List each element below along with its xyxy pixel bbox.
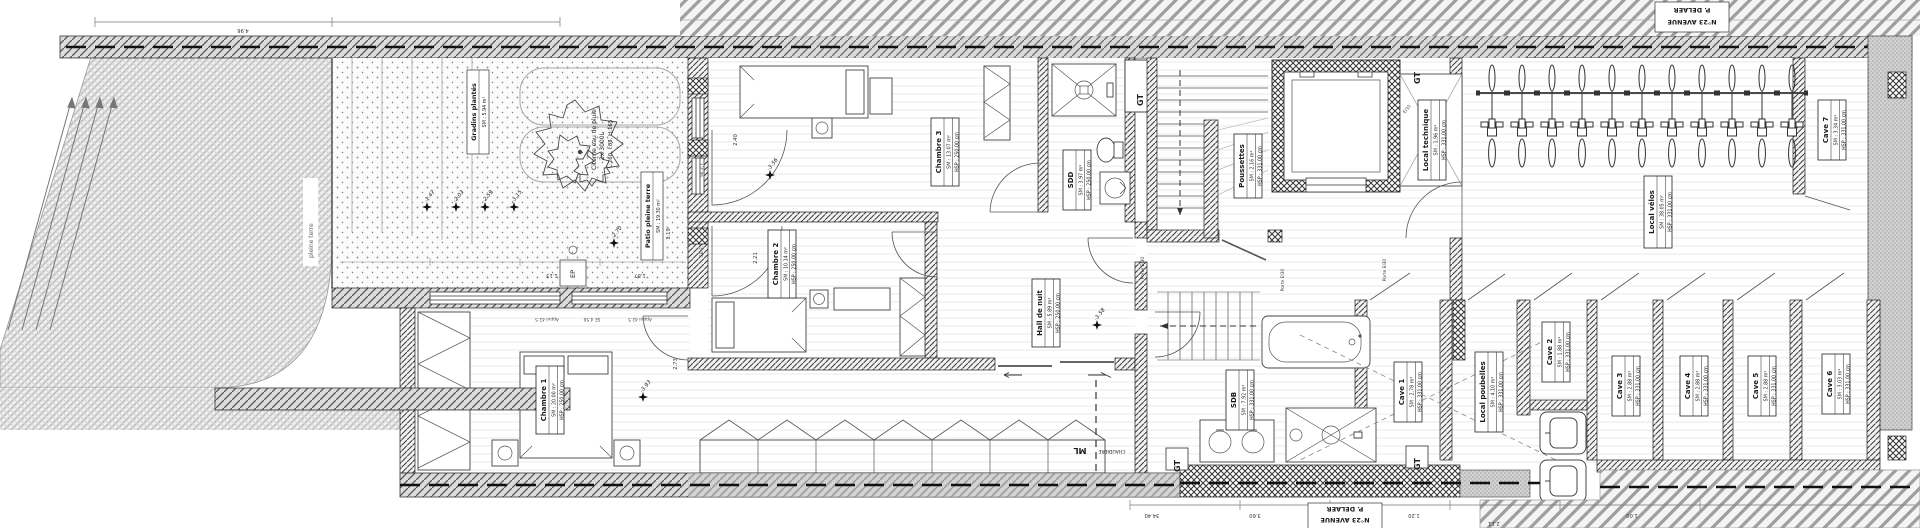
room-label-local-poubelles: Local poubelles SM : 4.10 m² HSP : 331.0… [1475, 352, 1505, 432]
svg-text:Cave 4: Cave 4 [1684, 373, 1692, 400]
svg-text:Citerne eau de pluie: Citerne eau de pluie [591, 109, 598, 170]
svg-text:1.19: 1.19 [666, 228, 672, 240]
svg-text:Chambre 2: Chambre 2 [772, 243, 780, 286]
svg-text:Porte EI30: Porte EI30 [1382, 259, 1388, 282]
room-label-sdb: SDB SM : 7.92 m² HSP : 331.00 cm [1226, 370, 1256, 430]
svg-text:Patio pleine terre: Patio pleine terre [644, 183, 652, 248]
floor-plan-canvas: pleine terre N°23 AVENUE P. DELAER 4.96 [0, 0, 1920, 528]
room-label-sdd: SDD SM : 3.97 m² HSP : 250.00 cm [1063, 150, 1093, 210]
svg-text:SM : 10.14 m²: SM : 10.14 m² [784, 247, 790, 281]
elevator-shaft [1272, 60, 1400, 192]
svg-text:Cave 5: Cave 5 [1752, 373, 1760, 400]
svg-text:SDB: SDB [1230, 392, 1238, 408]
svg-text:SM : 5.89 m²: SM : 5.89 m² [1048, 298, 1054, 329]
svg-text:HSP : 331.00 cm: HSP : 331.00 cm [1258, 146, 1264, 186]
svg-text:SM : 5.94 m²: SM : 5.94 m² [482, 97, 488, 128]
svg-text:GT: GT [1136, 94, 1145, 106]
parcel-pleine-terre-label: pleine terre [303, 178, 318, 266]
toilet-icon [1097, 138, 1123, 162]
svg-text:P. DELAER: P. DELAER [1327, 505, 1364, 513]
bathtub-icon [1262, 316, 1370, 368]
svg-text:SM : 2.16 m²: SM : 2.16 m² [1250, 151, 1256, 182]
avenue-label-bottom: N°23 AVENUE P. DELAER [1308, 503, 1382, 528]
patio-label: Patio pleine terre SM : 19.30 m² [641, 172, 663, 260]
svg-text:Appui 42.5: Appui 42.5 [535, 316, 559, 322]
svg-text:Chambre 3: Chambre 3 [935, 131, 943, 174]
svg-text:SM : 2.78 m²: SM : 2.78 m² [1410, 377, 1416, 408]
svg-text:Gradins plantés: Gradins plantés [470, 83, 478, 141]
floor-plan-page: pleine terre N°23 AVENUE P. DELAER 4.96 [0, 0, 1920, 528]
room-label-chambre2: Chambre 2 SM : 10.14 m² HSP : 250.00 cm [768, 230, 798, 298]
svg-text:HSP : 331.00 cm: HSP : 331.00 cm [1442, 120, 1448, 160]
svg-text:1.20: 1.20 [1408, 512, 1420, 518]
svg-text:HSP : 250.00 cm: HSP : 250.00 cm [792, 244, 798, 284]
svg-text:HSP : 331.00 cm: HSP : 331.00 cm [1636, 366, 1642, 406]
svg-text:HSP : 331.00 cm: HSP : 331.00 cm [1842, 110, 1848, 150]
shower-icon [1052, 64, 1116, 116]
svg-text:Cave 1: Cave 1 [1398, 379, 1406, 406]
svg-text:Local technique: Local technique [1422, 109, 1430, 172]
svg-text:2.11: 2.11 [1488, 520, 1500, 526]
svg-text:2x 3000L: 2x 3000L [599, 131, 606, 160]
svg-text:Chambre 1: Chambre 1 [540, 379, 548, 422]
svg-text:GT: GT [1413, 458, 1422, 470]
top-facade-band [60, 36, 1912, 58]
neighbour-building-hatch-top [680, 0, 1920, 36]
room-label-local-technique: Local technique SM : 1.96 m² HSP : 331.0… [1418, 100, 1448, 180]
svg-text:SM : 3.03 m²: SM : 3.03 m² [1838, 369, 1844, 400]
svg-text:1.87: 1.87 [634, 272, 646, 278]
svg-text:SE 2,7: SE 2,7 [699, 163, 705, 177]
svg-text:3.60: 3.60 [1249, 512, 1261, 518]
svg-text:2.73: 2.73 [673, 358, 679, 370]
svg-text:1.13: 1.13 [546, 272, 558, 278]
svg-text:SM : 1.88 m²: SM : 1.88 m² [1558, 337, 1564, 368]
room-label-cave5: Cave 5 SM : 2.88 m² HSP : 331.00 cm [1748, 356, 1778, 416]
svg-text:SM : 38.05 m²: SM : 38.05 m² [1660, 195, 1666, 229]
shower-icon [1286, 408, 1376, 462]
svg-text:SDD: SDD [1067, 171, 1075, 188]
svg-text:Cave 6: Cave 6 [1826, 371, 1834, 398]
svg-text:HSP : 250.00 cm: HSP : 250.00 cm [1087, 160, 1093, 200]
wardrobe-icon [900, 278, 925, 356]
washbasin-icon [1100, 172, 1130, 204]
svg-text:HSP : 331.00 cm: HSP : 331.00 cm [1250, 380, 1256, 420]
room-label-cave3: Cave 3 SM : 2.88 m² HSP : 331.00 cm [1612, 356, 1642, 416]
svg-text:Cave 3: Cave 3 [1616, 373, 1624, 400]
svg-text:N°23 AVENUE: N°23 AVENUE [1667, 18, 1716, 26]
svg-text:SE 2,3: SE 2,3 [699, 243, 705, 257]
garden-patio: Citerne eau de pluie 2x 3000L L:260, l:8… [332, 58, 688, 288]
svg-text:HSP : 331.00 cm: HSP : 331.00 cm [1418, 372, 1424, 412]
svg-text:ML: ML [1073, 446, 1086, 455]
svg-text:SM : 1.96 m²: SM : 1.96 m² [1434, 125, 1440, 156]
svg-text:HSP : 331.00 cm: HSP : 331.00 cm [1772, 366, 1778, 406]
dimension-line-top: 4.96 [95, 17, 560, 33]
room-label-local-velos: Local vélos SM : 38.05 m² HSP : 331.00 c… [1644, 176, 1674, 248]
svg-text:2.21: 2.21 [753, 252, 759, 264]
svg-text:Porte EI30: Porte EI30 [1140, 257, 1146, 280]
svg-text:SM : 2.88 m²: SM : 2.88 m² [1696, 371, 1702, 402]
svg-text:HSP : 250.00 cm: HSP : 250.00 cm [1056, 293, 1062, 333]
room-label-cave2: Cave 2 SM : 1.88 m² HSP : 331.00 cm [1542, 322, 1572, 382]
svg-text:HSP : 331.00 cm: HSP : 331.00 cm [1846, 364, 1852, 404]
svg-text:GT: GT [1173, 460, 1182, 472]
svg-text:pleine terre: pleine terre [308, 223, 315, 258]
svg-text:SM : 7.92 m²: SM : 7.92 m² [1242, 385, 1248, 416]
svg-text:HSP : 331.00 cm: HSP : 331.00 cm [1499, 372, 1505, 412]
svg-text:HSP : 331.00 cm: HSP : 331.00 cm [1704, 366, 1710, 406]
svg-text:1.00: 1.00 [1626, 512, 1638, 518]
room-label-chambre3: Chambre 3 SM : 13.07 m² HSP : 250.00 cm [931, 118, 961, 186]
avenue-label-top: N°23 AVENUE P. DELAER [1655, 2, 1729, 32]
svg-text:Appui 42.5: Appui 42.5 [628, 316, 652, 322]
svg-text:CHAUDIERE: CHAUDIERE [1098, 448, 1125, 454]
svg-text:Local vélos: Local vélos [1648, 190, 1656, 234]
svg-text:SM : 20.00 m²: SM : 20.00 m² [552, 383, 558, 417]
svg-text:Local poubelles: Local poubelles [1479, 361, 1487, 422]
wardrobe-icon [984, 66, 1010, 140]
svg-text:Cave 7: Cave 7 [1822, 117, 1830, 144]
svg-text:4.96: 4.96 [237, 27, 249, 33]
svg-text:Porte EI30: Porte EI30 [1280, 269, 1286, 292]
room-label-cave4: Cave 4 SM : 2.88 m² HSP : 331.00 cm [1680, 356, 1710, 416]
room-label-cave6: Cave 6 SM : 3.03 m² HSP : 331.00 cm [1822, 354, 1852, 414]
svg-text:SM : 4.10 m²: SM : 4.10 m² [1491, 377, 1497, 408]
room-label-cave1: Cave 1 SM : 2.78 m² HSP : 331.00 cm [1394, 362, 1424, 422]
svg-text:GT: GT [1413, 72, 1422, 84]
svg-text:P. DELAER: P. DELAER [1674, 6, 1711, 14]
svg-text:SM : 3.97 m²: SM : 3.97 m² [1079, 165, 1085, 196]
svg-text:SM : 2.88 m²: SM : 2.88 m² [1764, 371, 1770, 402]
svg-text:HSP : 250.00 cm: HSP : 250.00 cm [560, 380, 566, 420]
svg-text:HSP : 331.00 cm: HSP : 331.00 cm [1668, 192, 1674, 232]
room-label-cave7: Cave 7 SM : 3.34 m² HSP : 331.00 cm [1818, 100, 1848, 160]
svg-text:HSP : 250.00 cm: HSP : 250.00 cm [955, 132, 961, 172]
room-label-poussettes: Poussettes SM : 2.16 m² HSP : 331.00 cm [1234, 134, 1264, 198]
svg-text:SM : 19.30 m²: SM : 19.30 m² [656, 199, 662, 233]
svg-text:SM : 3.34 m²: SM : 3.34 m² [1834, 115, 1840, 146]
svg-text:Cave 2: Cave 2 [1546, 339, 1554, 366]
svg-text:L:260, l:88, H:165: L:260, l:88, H:165 [608, 120, 614, 168]
svg-text:HSP : 331.00 cm: HSP : 331.00 cm [1566, 332, 1572, 372]
room-label-hall-de-nuit: Hall de nuit SM : 5.89 m² HSP : 250.00 c… [1032, 279, 1062, 347]
svg-text:SM : 13.07 m²: SM : 13.07 m² [947, 135, 953, 169]
svg-text:SE 4.56: SE 4.56 [583, 316, 600, 322]
svg-text:2.40: 2.40 [733, 134, 739, 146]
svg-text:EP: EP [569, 270, 577, 278]
gradins-label: Gradins plantés SM : 5.94 m² [467, 70, 489, 154]
svg-text:SM : 2.88 m²: SM : 2.88 m² [1628, 371, 1634, 402]
svg-text:Poussettes: Poussettes [1238, 144, 1246, 188]
svg-text:Hall de nuit: Hall de nuit [1036, 289, 1044, 335]
svg-text:34.40: 34.40 [1145, 512, 1160, 518]
svg-text:N°23 AVENUE: N°23 AVENUE [1320, 516, 1369, 524]
room-label-chambre1: Chambre 1 SM : 20.00 m² HSP : 250.00 cm [536, 366, 566, 434]
